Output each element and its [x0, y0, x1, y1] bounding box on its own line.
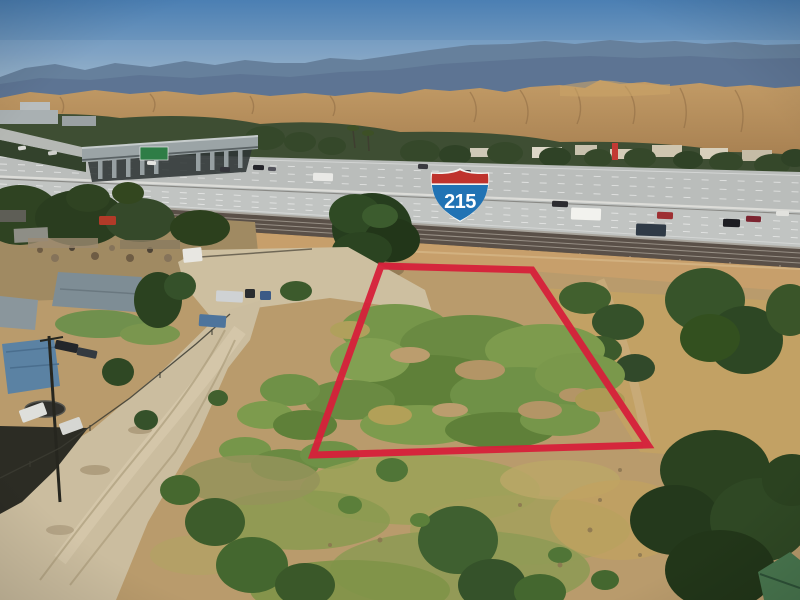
- vignette: [0, 0, 800, 600]
- aerial-photo: 215: [0, 0, 800, 600]
